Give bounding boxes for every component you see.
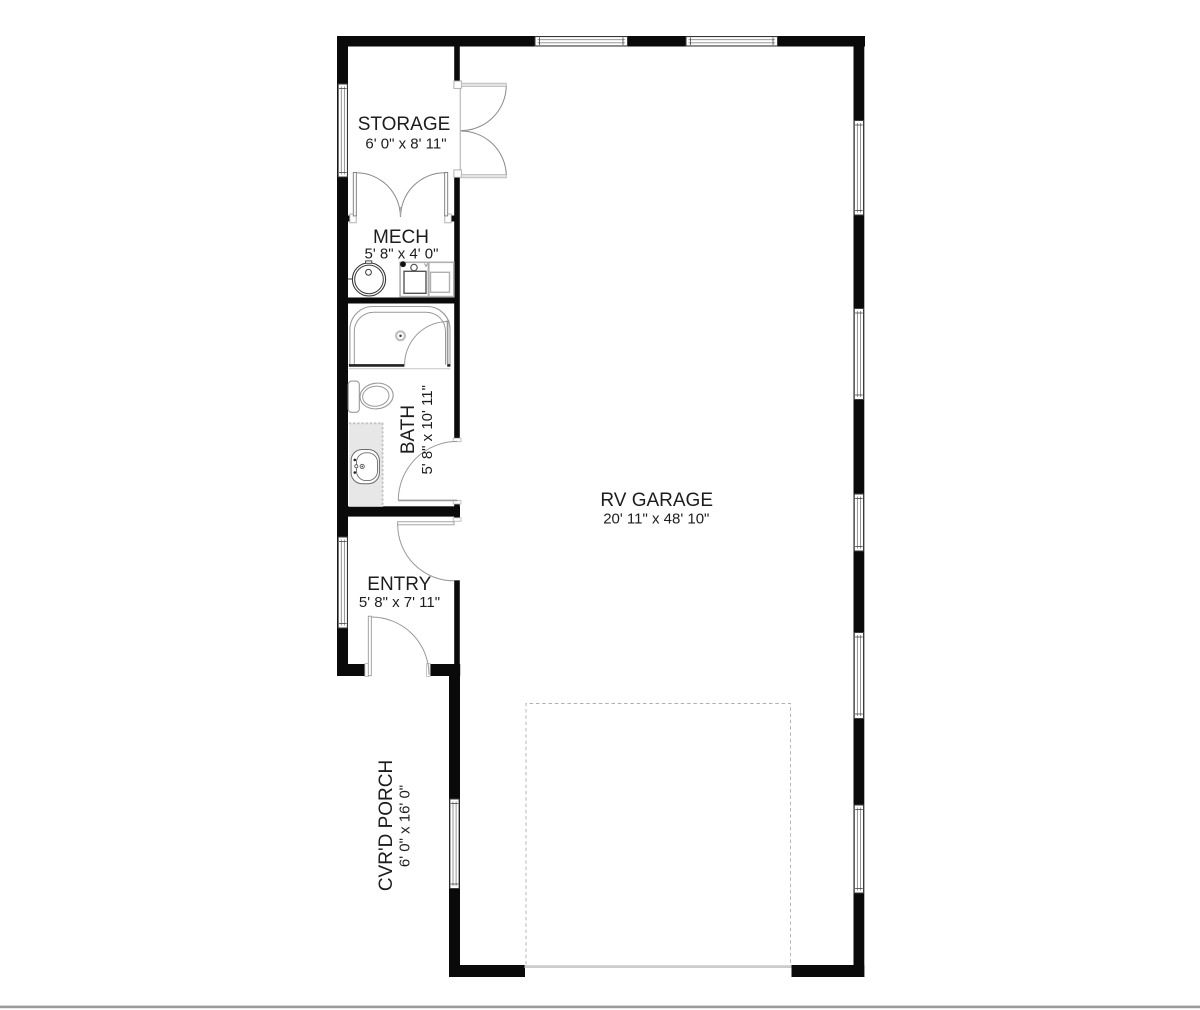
svg-text:RV GARAGE: RV GARAGE — [600, 490, 713, 511]
svg-text:5' 8" x 10' 11": 5' 8" x 10' 11" — [419, 385, 436, 475]
svg-text:5' 8" x 4' 0": 5' 8" x 4' 0" — [365, 246, 439, 263]
svg-text:6' 0" x 8' 11": 6' 0" x 8' 11" — [365, 136, 446, 153]
svg-text:BATH: BATH — [398, 405, 419, 454]
svg-text:CVR'D PORCH: CVR'D PORCH — [376, 760, 397, 891]
svg-text:STORAGE: STORAGE — [358, 114, 451, 135]
svg-text:6' 0" x 16' 0": 6' 0" x 16' 0" — [397, 785, 414, 867]
svg-text:20' 11" x 48' 10": 20' 11" x 48' 10" — [603, 510, 709, 527]
svg-text:5' 8" x 7' 11": 5' 8" x 7' 11" — [359, 594, 440, 611]
svg-text:ENTRY: ENTRY — [367, 574, 431, 595]
